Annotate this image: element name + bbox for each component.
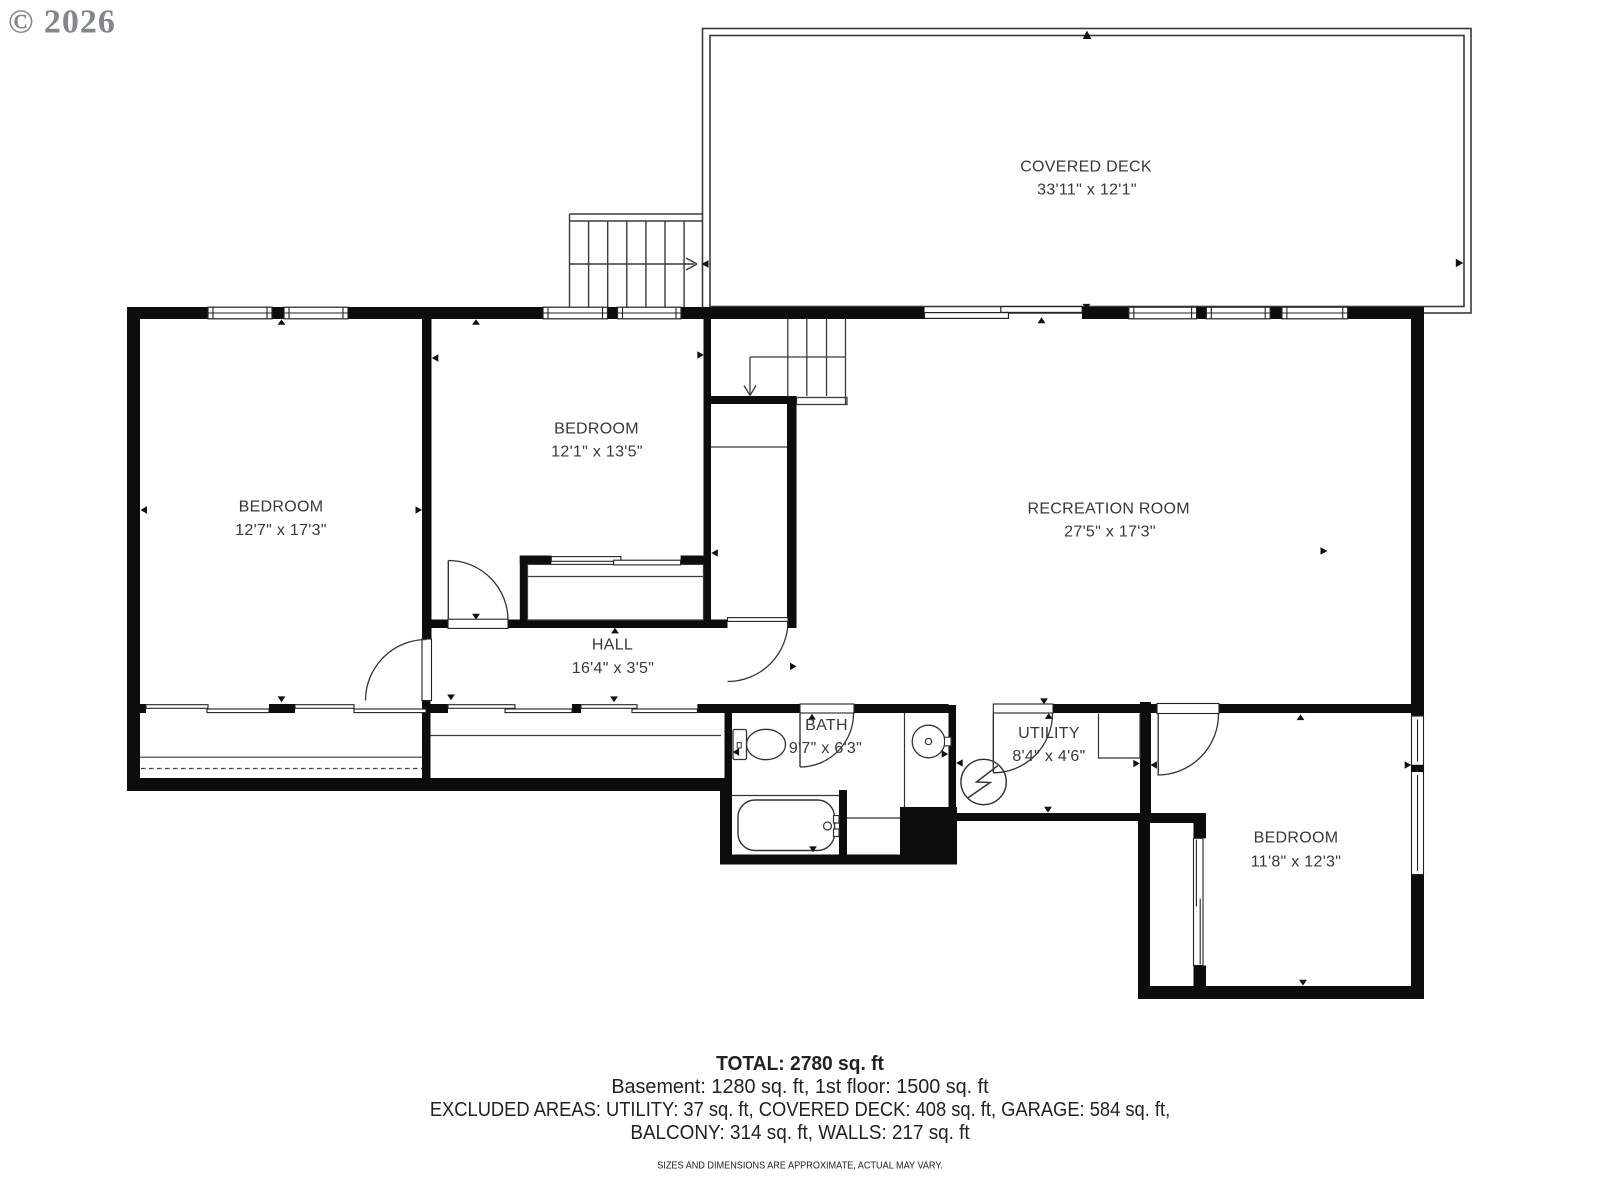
svg-text:HALL: HALL xyxy=(592,637,633,654)
svg-text:9'7" x 6'3": 9'7" x 6'3" xyxy=(789,740,862,757)
svg-text:RECREATION ROOM: RECREATION ROOM xyxy=(1027,501,1189,518)
svg-text:BEDROOM: BEDROOM xyxy=(554,421,639,438)
svg-text:11'8" x 12'3": 11'8" x 12'3" xyxy=(1251,854,1341,871)
svg-text:Basement: 1280 sq. ft, 1st flo: Basement: 1280 sq. ft, 1st floor: 1500 s… xyxy=(611,1076,989,1098)
svg-text:BEDROOM: BEDROOM xyxy=(239,499,324,516)
svg-text:27'5" x 17'3": 27'5" x 17'3" xyxy=(1064,524,1156,541)
svg-text:BALCONY: 314 sq. ft, WALLS: 21: BALCONY: 314 sq. ft, WALLS: 217 sq. ft xyxy=(630,1122,970,1145)
svg-text:COVERED DECK: COVERED DECK xyxy=(1020,159,1152,176)
svg-text:BATH: BATH xyxy=(805,717,848,734)
svg-text:16'4" x 3'5": 16'4" x 3'5" xyxy=(572,660,654,677)
svg-text:UTILITY: UTILITY xyxy=(1018,725,1080,742)
svg-text:SIZES AND DIMENSIONS ARE APPRO: SIZES AND DIMENSIONS ARE APPROXIMATE, AC… xyxy=(657,1160,943,1172)
svg-text:12'7" x 17'3": 12'7" x 17'3" xyxy=(235,522,327,539)
svg-text:TOTAL: 2780 sq. ft: TOTAL: 2780 sq. ft xyxy=(716,1053,884,1075)
svg-text:8'4" x 4'6": 8'4" x 4'6" xyxy=(1012,748,1085,765)
svg-text:EXCLUDED AREAS: UTILITY: 37 sq: EXCLUDED AREAS: UTILITY: 37 sq. ft, COVE… xyxy=(430,1099,1170,1121)
svg-text:33'11" x 12'1": 33'11" x 12'1" xyxy=(1037,182,1137,199)
svg-text:BEDROOM: BEDROOM xyxy=(1254,830,1339,847)
svg-text:12'1" x 13'5": 12'1" x 13'5" xyxy=(551,444,643,461)
svg-text:© 2026: © 2026 xyxy=(8,4,116,41)
